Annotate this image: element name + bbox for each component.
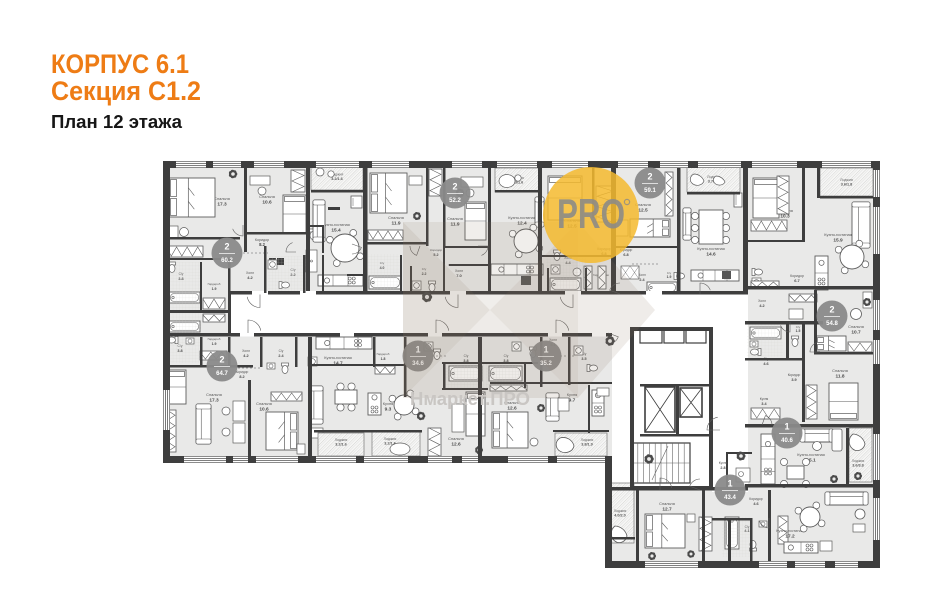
svg-text:4.2: 4.2 [759,304,764,308]
svg-text:3.2/1.6: 3.2/1.6 [335,443,347,447]
svg-text:3.2/1.6: 3.2/1.6 [331,177,343,181]
svg-text:Секция С1.2: Секция С1.2 [51,76,201,106]
svg-text:Спальня: Спальня [388,215,404,220]
svg-text:17.3: 17.3 [209,398,219,404]
svg-text:2: 2 [219,355,224,365]
svg-text:Кухня-гостиная: Кухня-гостиная [508,215,536,220]
svg-text:1.5: 1.5 [796,329,801,333]
svg-text:8.2: 8.2 [239,375,244,379]
svg-text:4.6: 4.6 [763,362,768,366]
svg-text:17.3: 17.3 [217,202,227,208]
svg-text:Кухня: Кухня [719,461,728,465]
svg-text:Лоджия: Лоджия [581,438,594,442]
svg-text:План 12 этажа: План 12 этажа [51,111,183,132]
svg-text:Гардероб: Гардероб [208,282,221,286]
svg-text:3.6/1.8: 3.6/1.8 [841,183,853,187]
svg-text:2: 2 [647,172,652,182]
svg-text:40.6: 40.6 [781,438,793,444]
svg-text:Лоджия: Лоджия [852,459,865,463]
svg-text:Спальня: Спальня [659,501,675,506]
svg-text:11.8: 11.8 [835,374,844,380]
svg-text:Спальня: Спальня [848,324,864,329]
svg-text:43.4: 43.4 [724,495,736,501]
svg-text:2: 2 [829,305,834,315]
svg-text:54.8: 54.8 [826,321,838,327]
svg-text:2.8: 2.8 [720,466,725,470]
svg-text:Кухня-гостиная: Кухня-гостиная [797,452,825,457]
svg-text:С/у: С/у [279,349,284,353]
svg-text:Нмаркет.ПРО: Нмаркет.ПРО [410,388,530,409]
svg-text:1: 1 [784,422,789,432]
svg-text:64.7: 64.7 [216,371,228,377]
svg-text:10.6: 10.6 [262,200,272,206]
svg-text:60.2: 60.2 [221,258,233,264]
svg-text:52.2: 52.2 [449,198,461,204]
svg-text:Спальня: Спальня [206,392,222,397]
svg-text:15.4: 15.4 [331,228,341,234]
svg-text:Кухня-гостиная: Кухня-гостиная [324,355,352,360]
svg-text:9.7: 9.7 [569,398,576,404]
svg-text:3.6/3.8: 3.6/3.8 [852,464,864,468]
svg-text:Лоджия: Лоджия [614,509,627,513]
svg-text:Гардероб: Гардероб [377,352,390,356]
svg-text:Холл: Холл [638,273,646,277]
svg-text:1.9: 1.9 [212,287,217,291]
svg-text:10.7: 10.7 [851,330,861,336]
svg-text:4.2: 4.2 [243,353,249,358]
svg-text:2: 2 [224,242,229,252]
svg-text:6.8: 6.8 [623,253,628,257]
svg-text:Лоджия: Лоджия [384,437,397,441]
svg-text:1.9: 1.9 [667,275,672,279]
svg-text:1.8: 1.8 [381,357,386,361]
svg-text:Коридор: Коридор [749,497,763,501]
svg-text:4.0/2.0: 4.0/2.0 [614,514,626,518]
svg-text:3.9: 3.9 [791,378,796,382]
svg-text:6.7: 6.7 [794,278,800,283]
svg-text:1.9: 1.9 [212,342,217,346]
svg-text:Спальня: Спальня [256,401,272,406]
svg-text:Кухня-гостиная: Кухня-гостиная [322,222,350,227]
svg-text:3.8/1.9: 3.8/1.9 [581,443,593,447]
svg-text:Кухня-гостиная: Кухня-гостиная [776,528,804,533]
svg-text:11.9: 11.9 [391,221,400,227]
svg-text:Спальня: Спальня [448,436,464,441]
svg-text:Коридор: Коридор [236,370,249,374]
svg-text:Кухня-гостиная: Кухня-гостиная [697,246,725,251]
svg-text:1: 1 [727,479,732,489]
svg-text:Лоджия: Лоджия [840,178,853,182]
svg-text:14.6: 14.6 [706,252,716,258]
svg-text:Гардероб: Гардероб [208,337,221,341]
svg-text:12.7: 12.7 [662,507,672,513]
svg-text:КОРПУС 6.1: КОРПУС 6.1 [51,49,189,79]
svg-text:Коридор: Коридор [788,373,801,377]
svg-text:17.2: 17.2 [785,534,795,540]
svg-text:4.6: 4.6 [753,502,758,506]
svg-text:Спальня: Спальня [447,216,463,221]
svg-text:12.6: 12.6 [451,442,461,448]
svg-text:2: 2 [452,182,457,192]
svg-text:Холл: Холл [758,299,766,303]
svg-text:Кухня-гостиная: Кухня-гостиная [824,232,852,237]
svg-text:4.2: 4.2 [247,275,253,280]
svg-text:12.5: 12.5 [638,208,648,214]
svg-text:9.3: 9.3 [385,407,392,413]
svg-text:Кухня: Кухня [760,397,769,401]
svg-text:Спальня: Спальня [832,368,848,373]
svg-text:PRO: PRO [557,190,625,237]
svg-text:15.9: 15.9 [833,238,843,244]
svg-text:Лоджия: Лоджия [335,438,348,442]
svg-text:Спальня: Спальня [214,196,230,201]
svg-text:59.1: 59.1 [644,188,656,194]
